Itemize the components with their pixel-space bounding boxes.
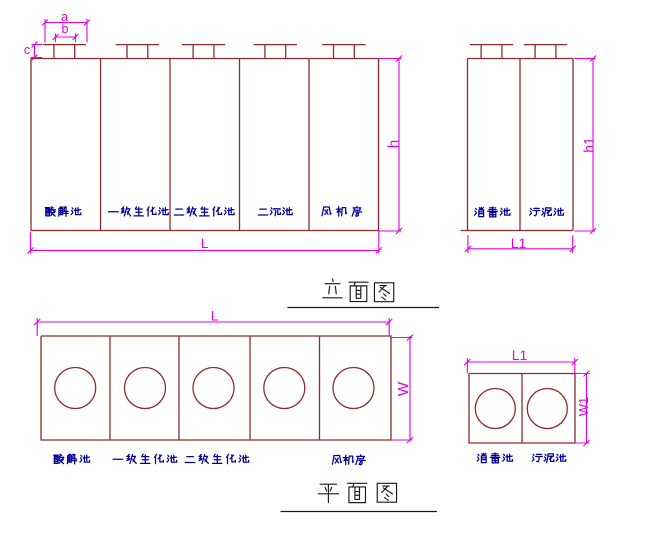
- svg-text:L1: L1: [512, 347, 528, 363]
- svg-text:h: h: [386, 140, 403, 148]
- svg-text:W1: W1: [576, 397, 591, 417]
- svg-text:W: W: [395, 381, 412, 396]
- svg-text:h1: h1: [580, 137, 596, 153]
- svg-text:L1: L1: [511, 235, 527, 251]
- svg-text:L: L: [201, 235, 209, 251]
- svg-text:c: c: [24, 43, 30, 57]
- svg-text:b: b: [62, 22, 69, 36]
- svg-text:L: L: [211, 307, 219, 323]
